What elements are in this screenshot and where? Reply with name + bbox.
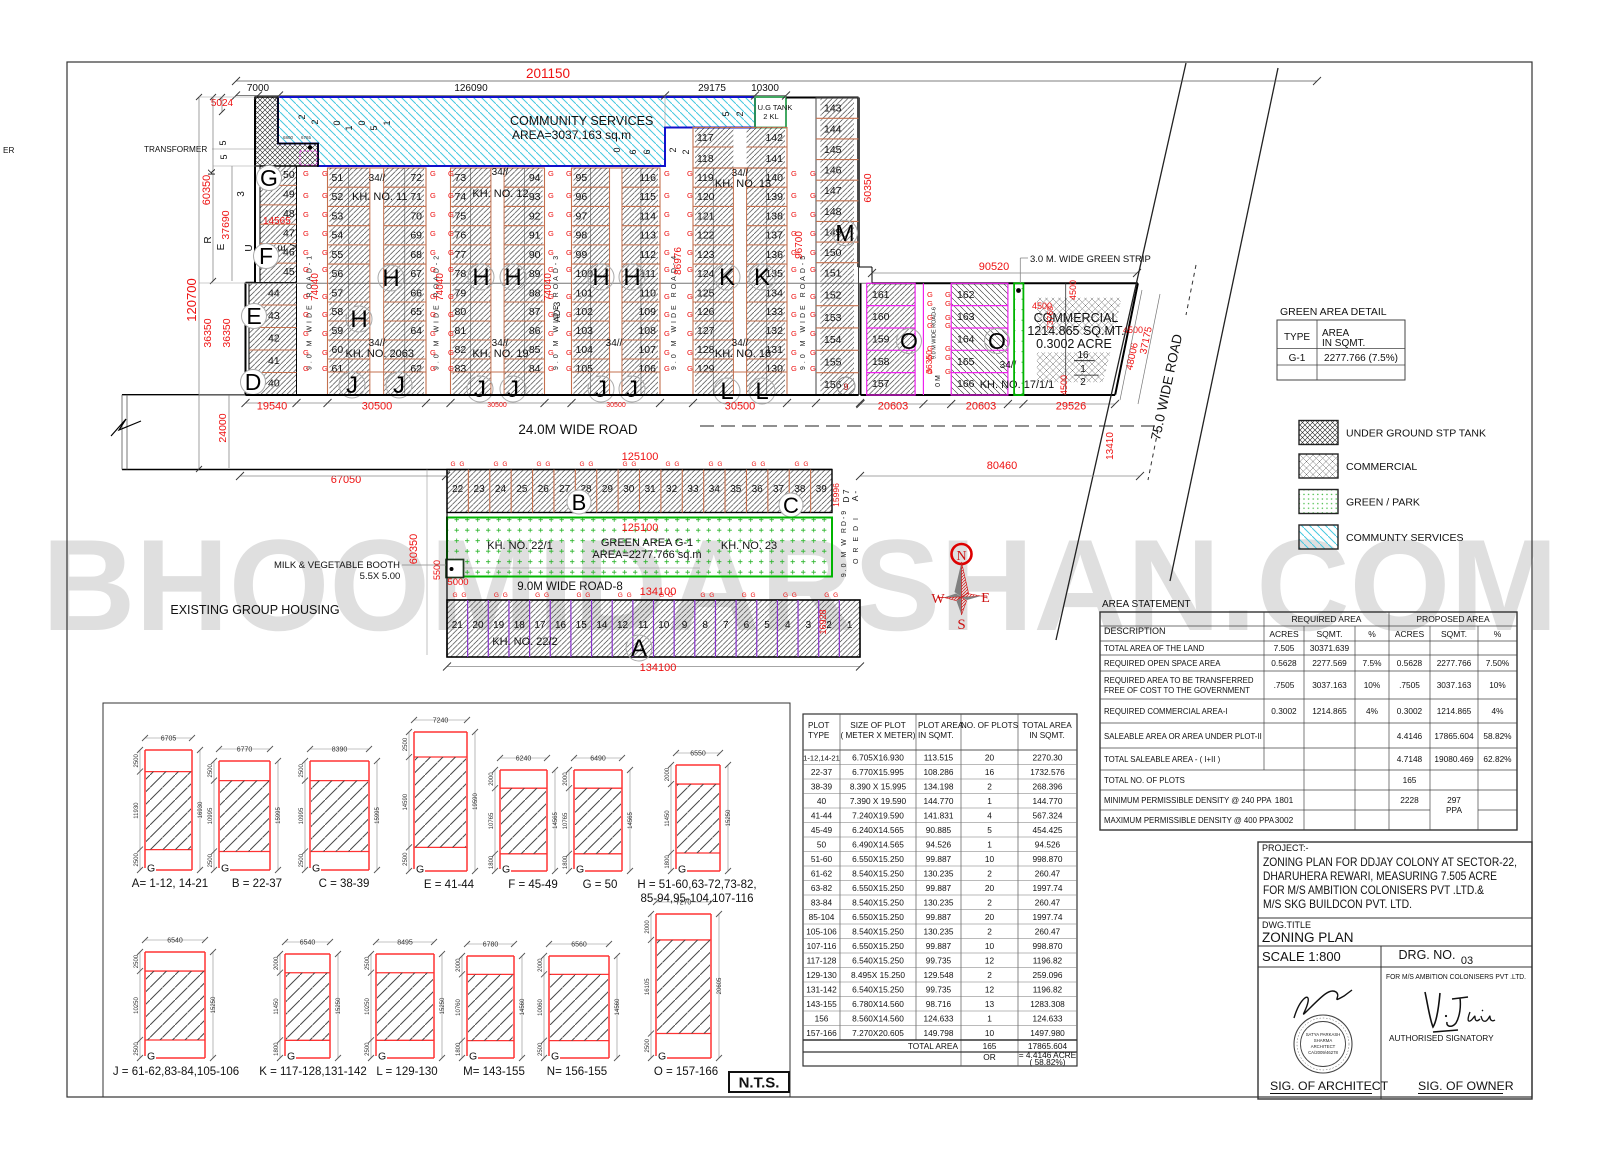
- svg-text:G: G: [551, 1051, 559, 1063]
- svg-text:149.798: 149.798: [924, 1028, 954, 1038]
- svg-text:126090: 126090: [454, 83, 488, 94]
- svg-text:G: G: [810, 210, 816, 219]
- svg-text:G: G: [430, 364, 436, 373]
- svg-text:54: 54: [332, 230, 344, 242]
- svg-text:TYPE: TYPE: [808, 731, 830, 740]
- svg-text:G: G: [687, 191, 693, 200]
- svg-text:2: 2: [297, 114, 307, 119]
- svg-text:03: 03: [1461, 955, 1473, 967]
- svg-text:G: G: [945, 321, 951, 330]
- svg-text:17865.604: 17865.604: [1434, 731, 1474, 741]
- svg-text:2500: 2500: [538, 1042, 544, 1056]
- svg-text:KH. NO. 2063: KH. NO. 2063: [346, 348, 414, 360]
- svg-text:J: J: [595, 376, 607, 403]
- svg-text:G: G: [810, 229, 816, 238]
- svg-text:50: 50: [817, 839, 827, 849]
- svg-text:80460: 80460: [987, 460, 1018, 472]
- svg-text:13: 13: [985, 999, 995, 1009]
- svg-text:83: 83: [455, 363, 467, 375]
- svg-text:G: G: [548, 348, 554, 357]
- svg-text:10: 10: [985, 854, 995, 864]
- svg-text:SIG. OF OWNER: SIG. OF OWNER: [1418, 1079, 1514, 1093]
- svg-text:61: 61: [332, 363, 344, 375]
- svg-text:34: 34: [709, 484, 721, 495]
- svg-text:13410: 13410: [1105, 432, 1116, 460]
- svg-text:6765: 6765: [301, 135, 312, 140]
- svg-text:ACRES: ACRES: [1269, 629, 1299, 639]
- svg-text:2000: 2000: [456, 958, 462, 972]
- svg-text:297: 297: [1447, 795, 1461, 805]
- svg-text:6: 6: [628, 149, 638, 154]
- svg-text:43: 43: [268, 310, 280, 322]
- svg-text:129-130: 129-130: [806, 970, 837, 980]
- svg-text:144.770: 144.770: [924, 796, 954, 806]
- svg-text:47: 47: [283, 227, 295, 239]
- svg-text:G: G: [430, 191, 436, 200]
- svg-text:UNDER GROUND STP TANK: UNDER GROUND STP TANK: [1346, 428, 1486, 440]
- svg-text:G: G: [322, 210, 328, 219]
- svg-text:14560: 14560: [615, 998, 621, 1015]
- svg-text:KH. NO. 19: KH. NO. 19: [472, 348, 528, 360]
- svg-text:G: G: [791, 292, 797, 301]
- svg-text:11450: 11450: [665, 810, 671, 827]
- svg-text:PLOT: PLOT: [808, 721, 829, 730]
- svg-text:2500: 2500: [134, 1042, 140, 1056]
- svg-text:94.526: 94.526: [926, 839, 952, 849]
- svg-text:2000: 2000: [538, 958, 544, 972]
- svg-text:12: 12: [985, 955, 995, 965]
- svg-text:CA/2009/46278: CA/2009/46278: [1308, 1050, 1338, 1055]
- svg-text:1196.82: 1196.82: [1033, 984, 1063, 994]
- svg-text:6.780X14.560: 6.780X14.560: [852, 999, 904, 1009]
- svg-text:TOTAL NO. OF PLOTS: TOTAL NO. OF PLOTS: [1104, 776, 1185, 785]
- svg-text:115: 115: [639, 191, 656, 203]
- svg-text:126: 126: [697, 306, 715, 318]
- svg-text:0.3002 ACRE: 0.3002 ACRE: [1036, 337, 1112, 351]
- svg-text:4500: 4500: [1068, 280, 1078, 300]
- svg-text:2270.30: 2270.30: [1033, 752, 1063, 762]
- svg-text:2000: 2000: [563, 772, 569, 786]
- svg-text:V: V: [289, 243, 300, 250]
- svg-text:78: 78: [455, 268, 467, 280]
- svg-text:2500: 2500: [134, 852, 140, 866]
- svg-text:454.425: 454.425: [1033, 825, 1063, 835]
- svg-text:G: G: [566, 169, 572, 178]
- svg-text:158: 158: [872, 356, 890, 368]
- svg-text:125100: 125100: [622, 522, 659, 534]
- svg-text:ARCHITECT: ARCHITECT: [1311, 1044, 1336, 1049]
- svg-text:G: G: [687, 292, 693, 301]
- svg-text:268.396: 268.396: [1033, 781, 1063, 791]
- svg-text:260.47: 260.47: [1035, 897, 1061, 907]
- svg-text:141.831: 141.831: [924, 810, 954, 820]
- svg-text:10995: 10995: [299, 807, 305, 824]
- svg-text:TOTAL AREA: TOTAL AREA: [908, 1041, 959, 1051]
- svg-text:G: G: [548, 292, 554, 301]
- svg-text:G: G: [566, 229, 572, 238]
- svg-text:10760: 10760: [456, 999, 462, 1016]
- svg-text:G G: G G: [535, 592, 550, 599]
- svg-text:30371.639: 30371.639: [1310, 643, 1350, 653]
- svg-text:156: 156: [815, 1013, 829, 1023]
- svg-text:G: G: [430, 329, 436, 338]
- svg-text:17: 17: [534, 620, 546, 631]
- svg-text:6705: 6705: [161, 736, 177, 743]
- svg-text:127: 127: [697, 325, 715, 337]
- svg-text:1497.980: 1497.980: [1030, 1028, 1065, 1038]
- svg-text:G: G: [548, 191, 554, 200]
- svg-text:5: 5: [218, 140, 228, 145]
- svg-text:2: 2: [668, 147, 678, 152]
- svg-text:145: 145: [824, 144, 842, 156]
- svg-text:39: 39: [816, 484, 828, 495]
- svg-text:8.560X14.560: 8.560X14.560: [852, 1013, 904, 1023]
- svg-text:G G: G G: [576, 592, 591, 599]
- svg-text:K: K: [207, 168, 218, 175]
- svg-text:COMMERCIAL: COMMERCIAL: [1346, 461, 1417, 473]
- svg-text:66: 66: [410, 287, 422, 299]
- svg-text:G: G: [430, 169, 436, 178]
- svg-text:G: G: [322, 248, 328, 257]
- svg-text:6: 6: [642, 149, 652, 154]
- svg-text:G: G: [448, 348, 454, 357]
- svg-text:G: G: [430, 210, 436, 219]
- svg-text:24: 24: [495, 484, 507, 495]
- svg-text:19590: 19590: [473, 792, 479, 809]
- svg-text:20603: 20603: [878, 401, 909, 413]
- svg-text:5.5X 5.00: 5.5X 5.00: [360, 571, 401, 582]
- svg-text:1214.865: 1214.865: [1437, 706, 1472, 716]
- svg-text:2: 2: [1080, 377, 1086, 388]
- svg-text:G: G: [430, 248, 436, 257]
- svg-text:KH. NO. 22/2: KH. NO. 22/2: [492, 636, 557, 648]
- svg-text:153: 153: [824, 312, 842, 324]
- svg-text:9.0 M W RD-9: 9.0 M W RD-9: [841, 509, 848, 577]
- svg-text:10: 10: [658, 620, 670, 631]
- svg-text:34//: 34//: [606, 338, 623, 349]
- svg-text:G: G: [430, 348, 436, 357]
- svg-text:TOTAL AREA: TOTAL AREA: [1022, 721, 1072, 730]
- svg-text:FOR M/S AMBITION COLONISERS PV: FOR M/S AMBITION COLONISERS PVT .LTD.: [1386, 972, 1526, 981]
- svg-text:G: G: [664, 292, 670, 301]
- svg-text:101: 101: [576, 287, 594, 299]
- svg-text:99.887: 99.887: [926, 883, 952, 893]
- svg-text:45: 45: [283, 266, 295, 278]
- svg-text:G: G: [548, 364, 554, 373]
- svg-text:G: G: [810, 310, 816, 319]
- svg-text:G: G: [548, 169, 554, 178]
- svg-text:34//: 34//: [732, 338, 749, 349]
- svg-text:G: G: [664, 248, 670, 257]
- svg-text:G: G: [687, 348, 693, 357]
- svg-text:.7505: .7505: [1274, 680, 1295, 690]
- svg-text:G G: G G: [700, 592, 715, 599]
- svg-text:91: 91: [529, 230, 541, 242]
- svg-text:4%: 4%: [1492, 706, 1505, 716]
- svg-text:9: 9: [843, 382, 848, 392]
- svg-text:10060: 10060: [538, 999, 544, 1016]
- svg-text:G: G: [664, 348, 670, 357]
- svg-text:DRG. NO.: DRG. NO.: [1399, 948, 1456, 962]
- svg-text:%: %: [1368, 629, 1376, 639]
- svg-text:112: 112: [639, 249, 656, 261]
- svg-text:45-49: 45-49: [811, 825, 833, 835]
- svg-text:85-104: 85-104: [809, 912, 835, 922]
- svg-text:G: G: [664, 265, 670, 274]
- svg-text:8.495X 15.250: 8.495X 15.250: [851, 970, 905, 980]
- svg-text:22: 22: [452, 484, 464, 495]
- svg-text:J: J: [507, 376, 519, 403]
- svg-text:120700: 120700: [184, 278, 199, 321]
- svg-text:G: G: [548, 248, 554, 257]
- svg-text:SHARMA: SHARMA: [1314, 1038, 1333, 1043]
- svg-text:G: G: [810, 169, 816, 178]
- svg-text:138: 138: [765, 210, 783, 222]
- svg-text:G: G: [287, 1051, 295, 1063]
- svg-text:163: 163: [957, 311, 975, 323]
- svg-text:61-62: 61-62: [811, 868, 833, 878]
- svg-text:10995: 10995: [208, 807, 214, 824]
- svg-text:55: 55: [332, 249, 344, 261]
- svg-text:14: 14: [596, 620, 608, 631]
- svg-text:K = 117-128,131-142: K = 117-128,131-142: [259, 1066, 367, 1078]
- svg-text:29: 29: [602, 484, 614, 495]
- svg-text:150: 150: [824, 247, 842, 259]
- svg-text:7000: 7000: [247, 83, 270, 94]
- svg-text:G: G: [303, 229, 309, 238]
- svg-text:B = 22-37: B = 22-37: [232, 878, 282, 890]
- svg-text:114: 114: [639, 210, 656, 222]
- svg-text:G: G: [566, 310, 572, 319]
- svg-text:H: H: [592, 264, 609, 291]
- svg-text:2277.569: 2277.569: [1312, 658, 1347, 668]
- svg-text:E: E: [246, 303, 261, 329]
- svg-text:G: G: [303, 210, 309, 219]
- svg-text:L: L: [755, 378, 768, 405]
- svg-text:2: 2: [681, 149, 691, 154]
- svg-text:G: G: [945, 353, 951, 362]
- svg-text:49: 49: [283, 188, 295, 200]
- svg-text:6.550X15.250: 6.550X15.250: [852, 883, 904, 893]
- svg-text:G: G: [430, 292, 436, 301]
- svg-text:2500: 2500: [365, 956, 371, 970]
- svg-text:2000: 2000: [274, 956, 280, 970]
- svg-text:G: G: [664, 229, 670, 238]
- svg-text:36350: 36350: [202, 318, 214, 347]
- svg-text:65: 65: [410, 306, 422, 318]
- svg-text:130.235: 130.235: [924, 868, 954, 878]
- svg-text:1732.576: 1732.576: [1030, 767, 1065, 777]
- svg-text:G: G: [810, 191, 816, 200]
- svg-text:44: 44: [268, 287, 280, 299]
- svg-text:IN SQMT.: IN SQMT.: [1029, 731, 1064, 740]
- svg-text:G: G: [927, 290, 933, 299]
- svg-text:1801: 1801: [1275, 795, 1294, 805]
- svg-text:G: G: [548, 229, 554, 238]
- svg-text:71: 71: [410, 191, 422, 203]
- svg-text:G G: G G: [795, 461, 810, 468]
- svg-text:6.490X14.565: 6.490X14.565: [852, 839, 904, 849]
- svg-text:O: O: [988, 328, 1006, 354]
- svg-text:G: G: [791, 169, 797, 178]
- svg-text:G: G: [687, 310, 693, 319]
- svg-text:4%: 4%: [1366, 706, 1379, 716]
- svg-text:H: H: [382, 265, 399, 292]
- svg-text:116: 116: [639, 172, 656, 184]
- svg-text:6.550X15.250: 6.550X15.250: [852, 854, 904, 864]
- svg-text:130: 130: [765, 363, 783, 375]
- svg-text:10: 10: [985, 941, 995, 951]
- svg-text:8.540X15.250: 8.540X15.250: [852, 868, 904, 878]
- svg-text:G: G: [566, 265, 572, 274]
- svg-text:C: C: [783, 493, 799, 518]
- svg-text:40: 40: [268, 377, 280, 389]
- svg-text:157: 157: [872, 378, 890, 390]
- svg-text:G: G: [147, 863, 155, 875]
- svg-text:120: 120: [697, 191, 715, 203]
- svg-text:G: G: [322, 364, 328, 373]
- svg-text:G: G: [448, 292, 454, 301]
- svg-text:86976: 86976: [673, 247, 684, 275]
- svg-text:34//: 34//: [369, 338, 386, 349]
- svg-text:G: G: [548, 310, 554, 319]
- svg-text:SATYA PARKASH: SATYA PARKASH: [1306, 1032, 1341, 1037]
- svg-text:77: 77: [455, 249, 467, 261]
- svg-text:H: H: [472, 264, 489, 291]
- svg-text:146: 146: [824, 165, 842, 177]
- svg-text:7.505: 7.505: [1274, 643, 1295, 653]
- svg-text:2: 2: [987, 868, 992, 878]
- svg-text:84: 84: [529, 363, 541, 375]
- svg-text:38-39: 38-39: [811, 781, 833, 791]
- svg-text:6800: 6800: [283, 135, 294, 140]
- svg-text:G: G: [303, 329, 309, 338]
- svg-text:5500: 5500: [432, 560, 442, 580]
- svg-text:108.286: 108.286: [924, 767, 954, 777]
- svg-text:8390: 8390: [332, 747, 348, 754]
- svg-text:260.47: 260.47: [1035, 926, 1061, 936]
- svg-text:G: G: [303, 265, 309, 274]
- svg-text:7: 7: [723, 620, 729, 631]
- svg-text:G G: G G: [709, 461, 724, 468]
- svg-text:7.5%: 7.5%: [1363, 658, 1383, 668]
- svg-text:12: 12: [985, 984, 995, 994]
- svg-text:82: 82: [455, 344, 467, 356]
- svg-text:20: 20: [985, 912, 995, 922]
- svg-text:36: 36: [752, 484, 764, 495]
- svg-text:73: 73: [455, 172, 467, 184]
- svg-text:G: G: [945, 344, 951, 353]
- svg-text:ER: ER: [3, 146, 14, 155]
- svg-text:4.7148: 4.7148: [1397, 754, 1423, 764]
- svg-text:93: 93: [529, 191, 541, 203]
- svg-text:H: H: [623, 264, 640, 291]
- svg-text:GREEN AREA DETAIL: GREEN AREA DETAIL: [1280, 306, 1387, 318]
- svg-text:5: 5: [987, 825, 992, 835]
- svg-text:G: G: [303, 191, 309, 200]
- svg-text:74: 74: [455, 191, 467, 203]
- svg-text:1: 1: [382, 120, 392, 125]
- svg-text:107-116: 107-116: [807, 941, 837, 951]
- svg-text:64: 64: [410, 325, 422, 337]
- svg-text:99.735: 99.735: [926, 984, 952, 994]
- svg-text:40: 40: [817, 796, 827, 806]
- svg-text:E: E: [216, 243, 227, 250]
- svg-text:KH. NO. 11: KH. NO. 11: [352, 191, 407, 203]
- svg-text:27: 27: [559, 484, 571, 495]
- svg-text:G: G: [791, 210, 797, 219]
- svg-text:121: 121: [697, 210, 715, 222]
- svg-text:G: G: [791, 348, 797, 357]
- svg-text:2500: 2500: [299, 853, 305, 867]
- svg-text:G: G: [322, 265, 328, 274]
- svg-text:ZONING PLAN: ZONING PLAN: [1262, 930, 1354, 945]
- svg-text:15250: 15250: [211, 996, 217, 1013]
- svg-text:G: G: [791, 248, 797, 257]
- svg-text:161: 161: [872, 289, 890, 301]
- svg-text:G: G: [810, 292, 816, 301]
- svg-text:6.550X15.250: 6.550X15.250: [852, 912, 904, 922]
- svg-text:124.633: 124.633: [1033, 1013, 1063, 1023]
- svg-text:G: G: [810, 265, 816, 274]
- svg-text:108: 108: [638, 325, 656, 337]
- svg-text:G: G: [687, 329, 693, 338]
- svg-text:80: 80: [455, 306, 467, 318]
- svg-text:36350: 36350: [221, 318, 233, 347]
- svg-text:35: 35: [730, 484, 742, 495]
- svg-text:53: 53: [332, 210, 344, 222]
- svg-text:73760: 73760: [1045, 306, 1055, 330]
- svg-text:KH. NO. 13: KH. NO. 13: [715, 178, 771, 190]
- svg-text:G: G: [664, 169, 670, 178]
- svg-text:KH. NO. 18: KH. NO. 18: [715, 348, 771, 360]
- svg-text:G: G: [791, 310, 797, 319]
- svg-text:62: 62: [410, 363, 422, 375]
- svg-text:144: 144: [824, 123, 842, 135]
- svg-text:2000: 2000: [489, 772, 495, 786]
- svg-text:A: A: [631, 635, 647, 662]
- svg-text:1: 1: [1080, 364, 1086, 375]
- svg-text:G: G: [322, 310, 328, 319]
- svg-text:2500: 2500: [403, 737, 409, 751]
- svg-text:1800: 1800: [274, 1042, 280, 1056]
- svg-text:G: G: [566, 364, 572, 373]
- svg-text:O R E D I: O R E D I: [853, 516, 860, 564]
- svg-text:10765: 10765: [489, 812, 495, 829]
- svg-text:94: 94: [529, 172, 541, 184]
- svg-text:REQUIRED AREA TO BE TRANSFERRE: REQUIRED AREA TO BE TRANSFERRED: [1104, 676, 1254, 685]
- svg-text:4: 4: [785, 620, 791, 631]
- svg-text:99.887: 99.887: [926, 912, 952, 922]
- svg-text:15995: 15995: [375, 806, 381, 823]
- svg-text:16105: 16105: [645, 978, 651, 995]
- svg-text:25: 25: [516, 484, 528, 495]
- svg-text:99.887: 99.887: [926, 941, 952, 951]
- svg-text:9.0M WIDE ROAD-8: 9.0M WIDE ROAD-8: [517, 581, 622, 593]
- svg-text:10765: 10765: [563, 812, 569, 829]
- svg-text:15250: 15250: [440, 997, 446, 1014]
- svg-text:1: 1: [344, 125, 354, 130]
- svg-text:52: 52: [332, 191, 344, 203]
- svg-text:G: G: [945, 290, 951, 299]
- svg-text:G: G: [448, 310, 454, 319]
- svg-text:6560: 6560: [571, 942, 587, 949]
- svg-text:29526: 29526: [1056, 401, 1087, 413]
- svg-text:6780: 6780: [483, 942, 499, 949]
- svg-text:M= 143-155: M= 143-155: [463, 1066, 525, 1078]
- svg-text:G: G: [664, 310, 670, 319]
- svg-text:567.324: 567.324: [1033, 810, 1063, 820]
